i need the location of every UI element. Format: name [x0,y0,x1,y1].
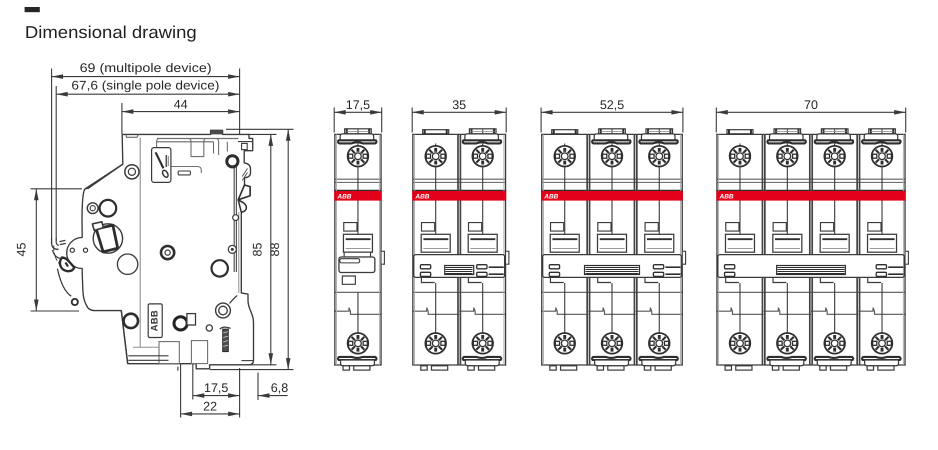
svg-text:ABB: ABB [336,194,351,201]
svg-text:69 (multipole device): 69 (multipole device) [80,61,212,75]
svg-text:35: 35 [452,98,466,112]
svg-text:22: 22 [203,399,217,413]
svg-text:45: 45 [15,243,29,257]
svg-text:ABB: ABB [543,194,558,201]
svg-text:44: 44 [174,97,188,111]
svg-text:70: 70 [804,98,818,112]
svg-text:67,6 (single pole device): 67,6 (single pole device) [71,78,219,92]
svg-text:52,5: 52,5 [600,98,624,112]
svg-text:6,8: 6,8 [271,381,288,395]
svg-text:85: 85 [251,243,265,257]
svg-text:ABB: ABB [150,310,161,331]
svg-text:88: 88 [268,243,282,257]
svg-text:ABB: ABB [414,194,429,201]
svg-text:ABB: ABB [719,194,734,201]
svg-text:Dimensional drawing: Dimensional drawing [25,22,197,42]
svg-text:17,5: 17,5 [346,98,370,112]
svg-text:17,5: 17,5 [204,381,228,395]
